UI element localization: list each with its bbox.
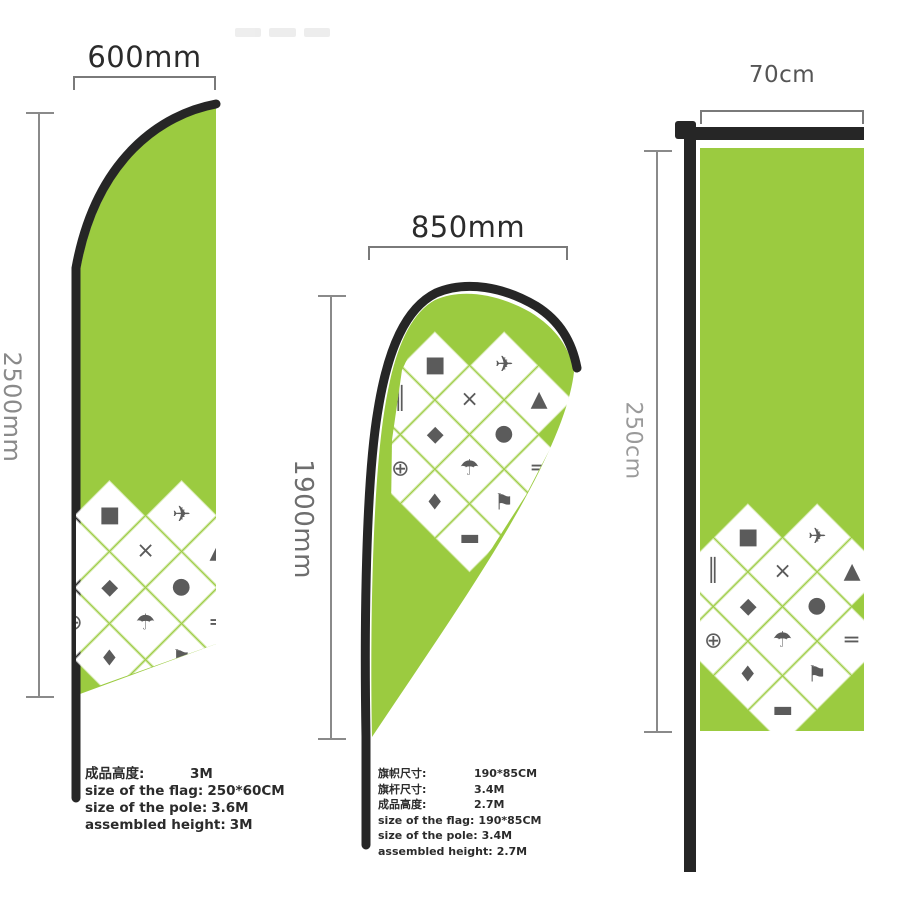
- base-plate-icon: ■: [737, 526, 758, 548]
- pole-segment-icon: ═: [845, 630, 858, 652]
- spec-row: 旗帜尺寸: 190*85CM: [378, 766, 541, 782]
- teardrop-flag-specs: 旗帜尺寸: 190*85CM 旗杆尺寸: 3.4M 成品高度: 2.7M siz…: [378, 766, 541, 859]
- carry-tube-icon: ◆: [101, 576, 118, 598]
- spec-label: 旗帜尺寸:: [378, 766, 474, 782]
- cross-base-icon: ×: [460, 389, 478, 411]
- spec-value: 2.7M: [474, 797, 504, 813]
- spec-label: size of the pole:: [85, 800, 211, 817]
- spec-value: 190*85CM: [478, 813, 541, 829]
- umbrella-base-icon: ☂: [460, 458, 480, 480]
- spec-value: 2.7M: [497, 844, 527, 860]
- carry-tube-icon: ◆: [426, 423, 443, 445]
- spec-row: assembled height: 2.7M: [378, 844, 541, 860]
- flag-kit-icon: ⚑: [807, 665, 827, 687]
- rectangle-width-dimension-line: [700, 110, 864, 126]
- ground-spike-icon: ✈: [172, 504, 190, 526]
- teardrop-height-dimension-line: [330, 295, 346, 740]
- ground-spike-icon: ✈: [808, 526, 826, 548]
- rectangle-width-label: 70cm: [700, 62, 864, 88]
- pole-set-icon: ║: [707, 561, 720, 583]
- rectangle-flag-crossbar: [684, 127, 864, 140]
- rotator-base-icon: ⊕: [391, 458, 409, 480]
- spec-value: 3M: [190, 766, 213, 783]
- spec-label: size of the flag:: [378, 813, 478, 829]
- base-plate-icon: ■: [424, 354, 445, 376]
- spec-label: 旗杆尺寸:: [378, 782, 474, 798]
- rectangle-flag-collage: ✈▲■×●═║◆☂⚑+⊕♦▬: [700, 480, 864, 731]
- spec-label: 成品高度:: [378, 797, 474, 813]
- rectangle-height-dimension-line: [656, 150, 672, 733]
- feather-width-dimension-line: [73, 76, 216, 92]
- water-bag-icon: ●: [495, 423, 514, 445]
- teardrop-height-label: 1900mm: [288, 439, 318, 599]
- water-bag-icon: ●: [172, 576, 191, 598]
- rotator-base-icon: ⊕: [704, 630, 722, 652]
- feather-flag-specs: 成品高度: 3M size of the flag: 250*60CM size…: [85, 766, 285, 834]
- spec-label: assembled height:: [85, 817, 230, 834]
- pole-segment-icon: ═: [211, 613, 216, 635]
- feather-height-label: 2500mm: [0, 327, 26, 487]
- spec-value: 250*60CM: [207, 783, 284, 800]
- spare-part-icon: ▬: [459, 527, 480, 549]
- cross-base-icon: ×: [773, 561, 791, 583]
- water-bag-icon: ●: [808, 595, 827, 617]
- spec-value: 3.4M: [482, 828, 512, 844]
- teardrop-width-dimension-line: [368, 246, 568, 262]
- pole-set-icon: ║: [76, 540, 80, 562]
- spec-row: assembled height: 3M: [85, 817, 285, 834]
- spec-row: 成品高度: 2.7M: [378, 797, 541, 813]
- umbrella-base-icon: ☂: [136, 613, 156, 635]
- spec-value: 190*85CM: [474, 766, 537, 782]
- bag-icon: ♦: [738, 665, 758, 687]
- base-plate-icon: ■: [99, 504, 120, 526]
- bag-icon: ♦: [425, 493, 445, 515]
- carry-tube-icon: ◆: [739, 595, 756, 617]
- feather-width-label: 600mm: [73, 40, 216, 74]
- spare-part-icon: ▬: [772, 699, 793, 721]
- spec-row: size of the pole: 3.4M: [378, 828, 541, 844]
- spec-row: size of the flag: 250*60CM: [85, 783, 285, 800]
- cross-base-icon: ×: [136, 540, 154, 562]
- spec-label: assembled height:: [378, 844, 497, 860]
- rectangle-height-label: 250cm: [621, 361, 646, 521]
- tent-icon: ▲: [530, 389, 547, 411]
- spec-value: 3.6M: [211, 800, 248, 817]
- flag-kit-icon: ⚑: [494, 493, 514, 515]
- feather-height-dimension-line: [38, 112, 54, 698]
- spec-value: 3.4M: [474, 782, 504, 798]
- spec-label: size of the pole:: [378, 828, 482, 844]
- spec-row: 旗杆尺寸: 3.4M: [378, 782, 541, 798]
- tent-icon: ▲: [209, 540, 216, 562]
- bag-icon: ♦: [100, 649, 120, 671]
- spec-label: 成品高度:: [85, 766, 190, 783]
- spec-row: 成品高度: 3M: [85, 766, 285, 783]
- spec-value: 3M: [230, 817, 253, 834]
- umbrella-base-icon: ☂: [773, 630, 793, 652]
- rectangle-flag-pole: [684, 124, 696, 872]
- tent-icon: ▲: [843, 561, 860, 583]
- rotator-base-icon: ⊕: [76, 613, 83, 635]
- flag-size-diagram: ✈▲■×●═║◆☂⚑+⊕♦▬ ✈▲■×●═║◆☂⚑+⊕♦▬ ✈▲■×●═║◆☂⚑…: [0, 0, 920, 920]
- spec-row: size of the flag: 190*85CM: [378, 813, 541, 829]
- teardrop-width-label: 850mm: [368, 210, 568, 244]
- spec-label: size of the flag:: [85, 783, 207, 800]
- spec-row: size of the pole: 3.6M: [85, 800, 285, 817]
- ground-spike-icon: ✈: [495, 354, 513, 376]
